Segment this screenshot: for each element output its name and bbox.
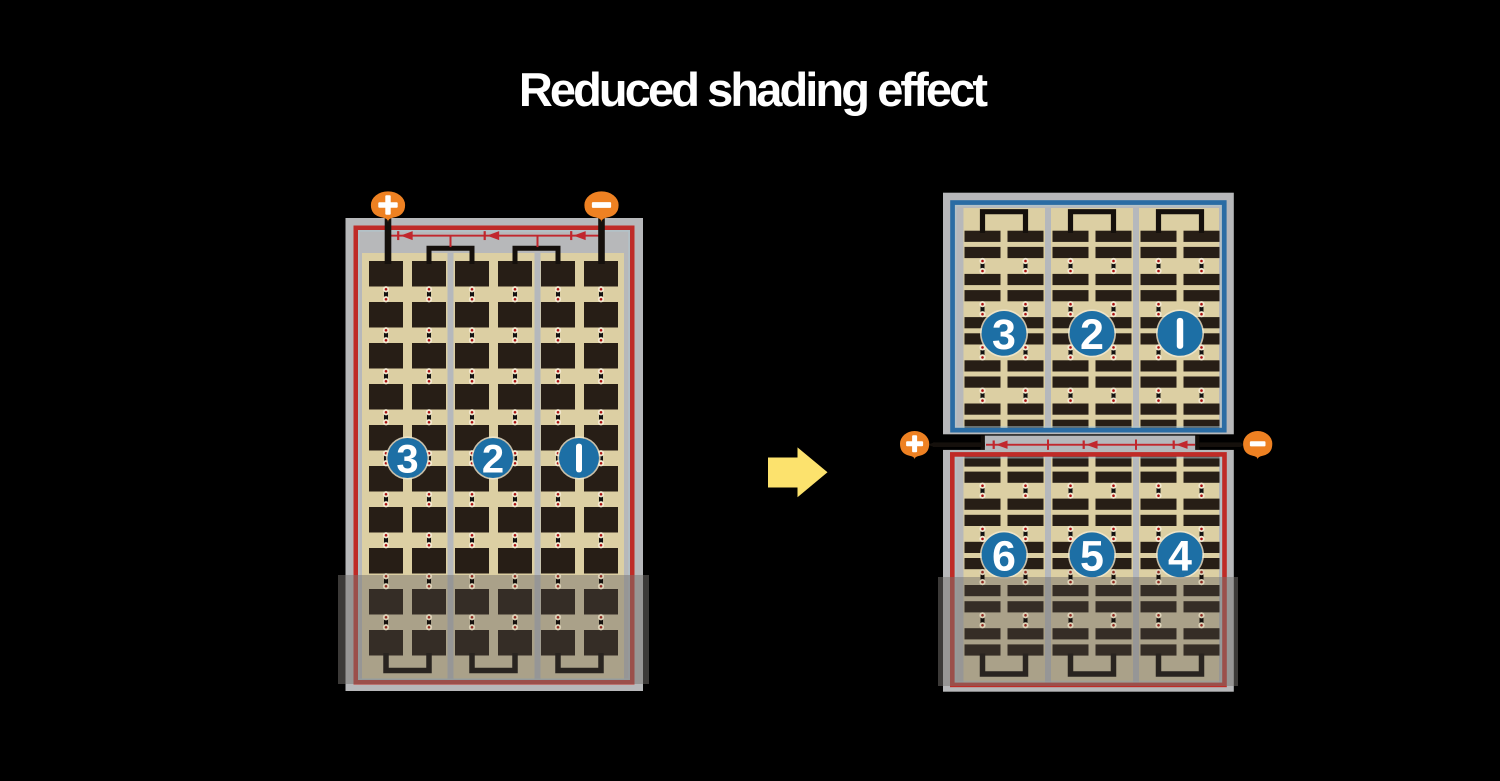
svg-text:3: 3	[396, 438, 418, 482]
svg-text:2: 2	[1080, 311, 1104, 359]
svg-text:5: 5	[1080, 533, 1104, 581]
svg-text:Reduced shading effect: Reduced shading effect	[519, 63, 989, 116]
svg-text:6: 6	[992, 533, 1016, 581]
svg-text:4: 4	[1168, 533, 1192, 581]
svg-text:2: 2	[482, 438, 504, 482]
svg-text:3: 3	[992, 311, 1016, 359]
